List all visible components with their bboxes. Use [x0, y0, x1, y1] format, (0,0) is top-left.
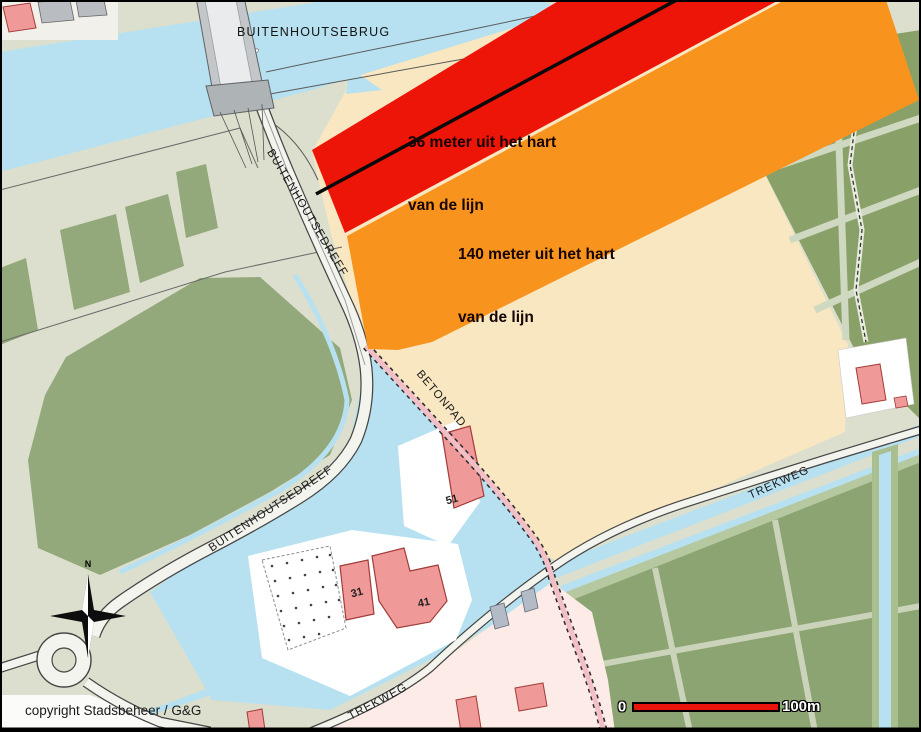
corner-building-gray [76, 0, 107, 17]
building-31 [340, 560, 374, 620]
map-canvas [0, 0, 921, 732]
roundabout-island [52, 648, 76, 672]
building-right-small [894, 396, 908, 408]
building-bottom [456, 696, 481, 732]
building-bottom [515, 683, 547, 711]
corner-building-pink [3, 3, 36, 32]
corner-building-gray [38, 0, 74, 23]
city-map: BUITENHOUTSEBRUG BUITENHOUTSEDREEF BUITE… [0, 0, 921, 732]
ditch-water [879, 451, 891, 732]
scale-bar [633, 703, 779, 711]
building-right [856, 364, 886, 404]
